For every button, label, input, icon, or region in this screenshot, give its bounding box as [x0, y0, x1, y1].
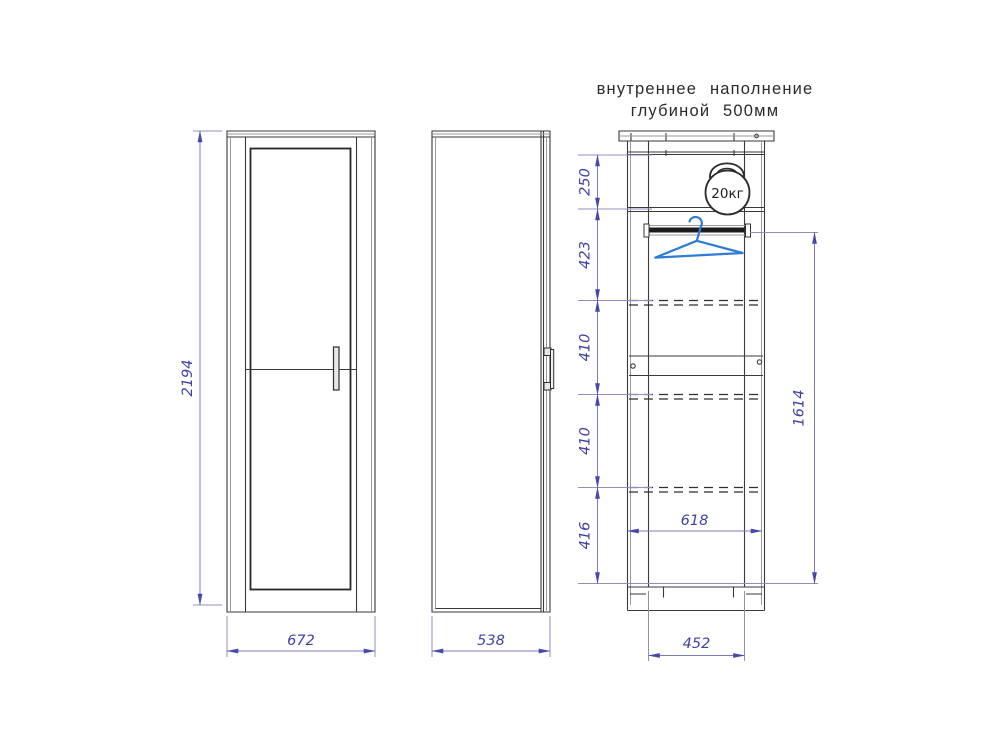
cam-lock-left — [631, 364, 635, 368]
hanger-triangle — [655, 241, 742, 258]
base-width-label: 452 — [683, 636, 711, 652]
hanging-height-label: 1614 — [792, 390, 808, 427]
handle-mount-top — [544, 348, 551, 356]
rod-bracket-left — [644, 224, 649, 237]
front-height-label: 2194 — [180, 360, 196, 397]
front-extension-lines — [193, 131, 375, 657]
front-width-label: 672 — [287, 633, 315, 649]
front-door-handle — [334, 347, 340, 390]
side-cabinet-outline — [432, 131, 550, 612]
handle-mount-bottom — [544, 383, 551, 391]
front-view: 2194 672 — [180, 131, 375, 657]
adjustable-shelf-position-1 — [629, 301, 763, 306]
adjustable-shelf-position-3 — [629, 488, 763, 493]
kettlebell-icon: 20кг — [706, 163, 750, 214]
rod-bracket-right — [746, 224, 751, 237]
kettlebell-weight-label: 20кг — [711, 186, 743, 202]
internal-view: 20кг 250 423 410 410 416 618 — [578, 131, 819, 661]
front-cabinet-outline — [227, 131, 375, 612]
segment-label-4: 410 — [578, 427, 594, 455]
internal-fixed-shelf — [629, 356, 763, 376]
front-edge-lines — [227, 134, 375, 612]
adjustable-shelf-position-2 — [629, 395, 763, 400]
rod-bar — [649, 228, 745, 233]
clothes-hanger-icon — [655, 217, 742, 258]
segment-label-3: 410 — [578, 334, 594, 362]
handle-bar — [551, 350, 554, 389]
drawing-canvas: внутреннее наполнение глубиной 500мм 219… — [0, 0, 1000, 750]
side-view: 538 — [432, 131, 554, 657]
wardrobe-technical-drawing: 2194 672 538 — [0, 0, 1000, 750]
internal-carcass-edges — [631, 141, 762, 605]
inner-width-label: 618 — [681, 513, 709, 529]
segment-label-1: 250 — [578, 168, 594, 196]
hanger-rod — [644, 224, 751, 237]
side-door-handle — [544, 348, 554, 390]
segment-label-2: 423 — [578, 241, 594, 269]
side-depth-label: 538 — [477, 633, 505, 649]
side-edge-lines — [432, 134, 550, 612]
segment-label-5: 416 — [578, 522, 594, 550]
